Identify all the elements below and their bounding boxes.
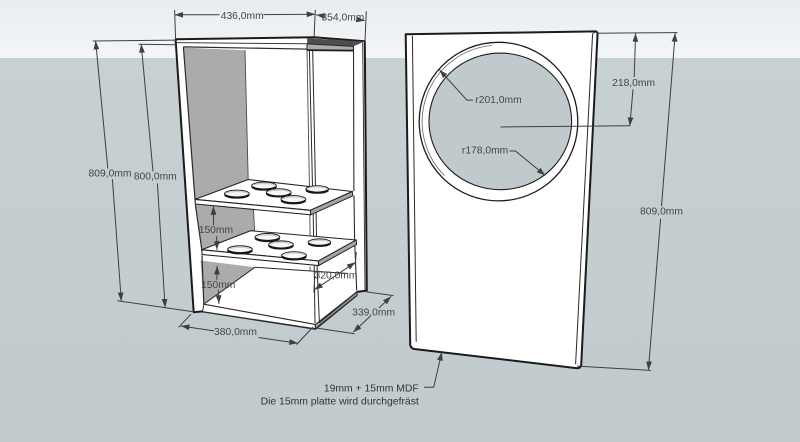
svg-text:r201,0mm: r201,0mm bbox=[475, 95, 521, 106]
svg-text:436,0mm: 436,0mm bbox=[221, 11, 264, 22]
svg-text:380,0mm: 380,0mm bbox=[214, 327, 257, 338]
svg-text:809,0mm: 809,0mm bbox=[640, 206, 683, 217]
svg-text:r178,0mm: r178,0mm bbox=[462, 145, 508, 156]
svg-text:809,0mm: 809,0mm bbox=[89, 168, 132, 179]
svg-text:320,0mm: 320,0mm bbox=[315, 271, 358, 282]
svg-text:Die 15mm platte wird durchgefr: Die 15mm platte wird durchgefräst bbox=[261, 396, 419, 407]
svg-text:218,0mm: 218,0mm bbox=[612, 78, 655, 89]
svg-text:800,0mm: 800,0mm bbox=[134, 172, 177, 183]
svg-text:354,0mm: 354,0mm bbox=[321, 12, 364, 23]
svg-text:150mm: 150mm bbox=[201, 280, 235, 291]
svg-text:150mm: 150mm bbox=[199, 225, 233, 236]
svg-text:19mm + 15mm MDF: 19mm + 15mm MDF bbox=[324, 383, 419, 394]
svg-text:339,0mm: 339,0mm bbox=[352, 308, 395, 319]
